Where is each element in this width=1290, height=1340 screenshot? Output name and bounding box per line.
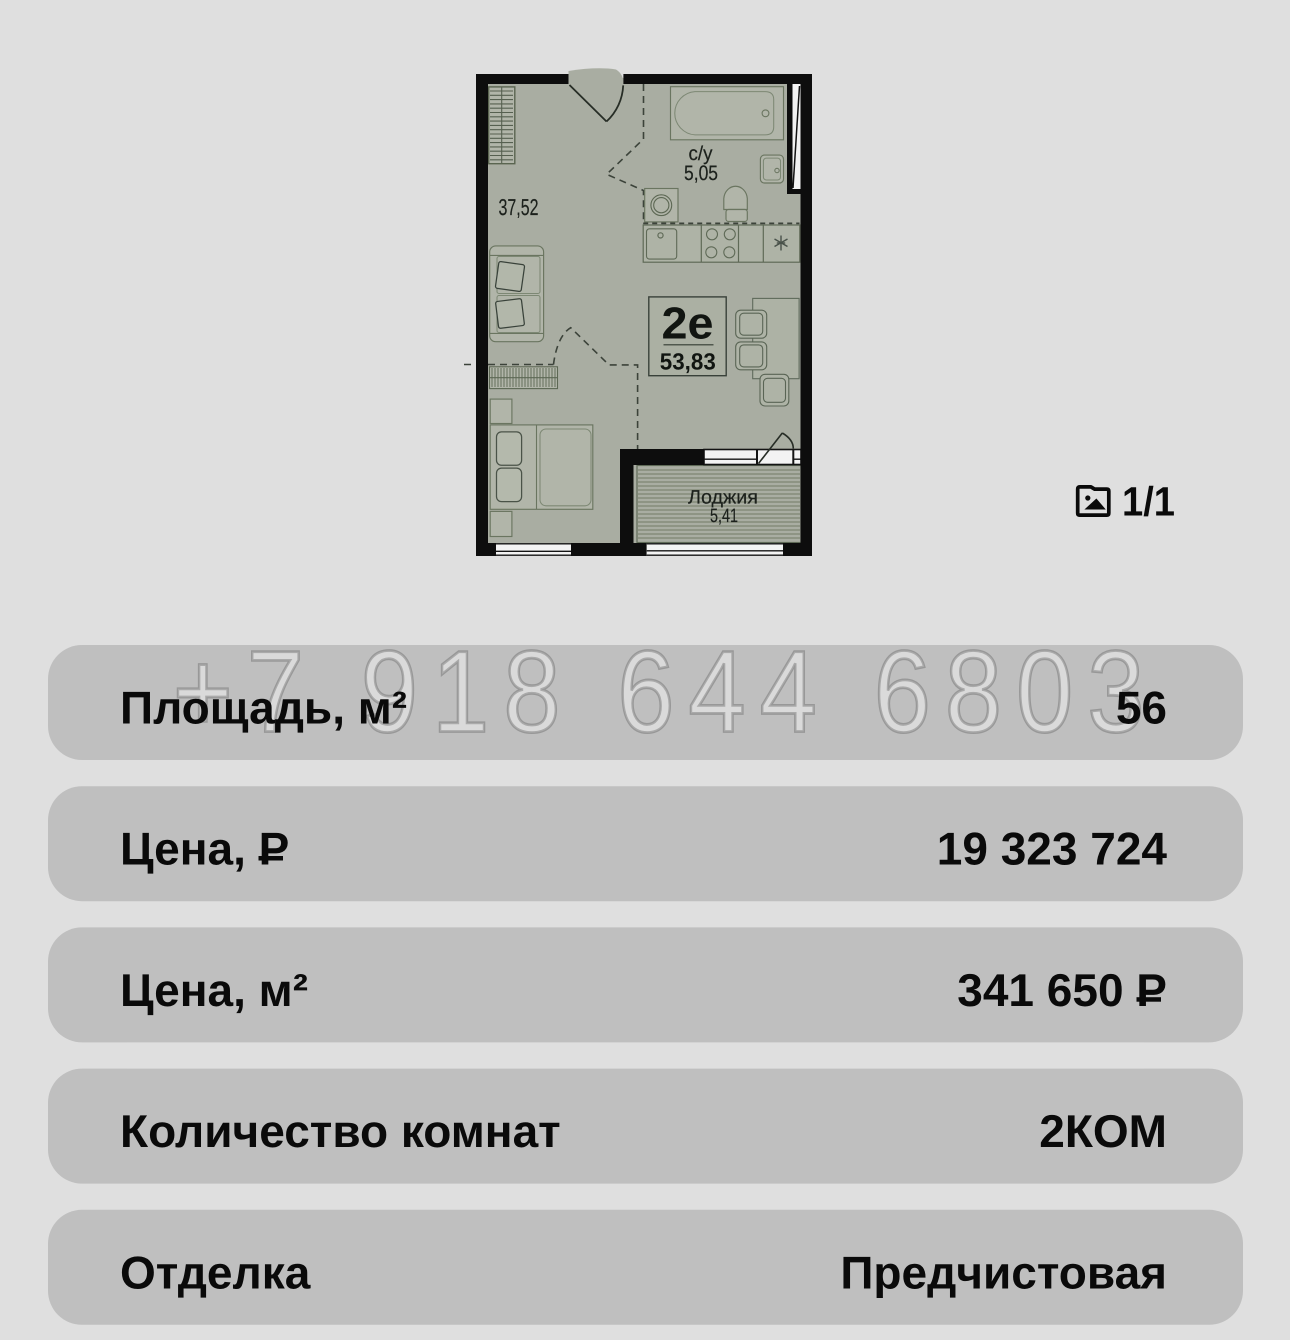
- svg-text:56: 56: [1116, 682, 1167, 734]
- svg-text:5,05: 5,05: [684, 162, 718, 185]
- svg-text:5,41: 5,41: [710, 505, 738, 527]
- svg-text:37,52: 37,52: [499, 194, 539, 220]
- svg-text:2е: 2е: [662, 298, 714, 349]
- svg-text:2КОМ: 2КОМ: [1039, 1105, 1167, 1157]
- svg-text:Цена, м²: Цена, м²: [120, 964, 308, 1016]
- svg-text:Количество комнат: Количество комнат: [120, 1105, 561, 1157]
- svg-text:53,83: 53,83: [660, 349, 716, 375]
- svg-text:Отделка: Отделка: [120, 1246, 311, 1298]
- svg-text:1/1: 1/1: [1122, 479, 1175, 525]
- svg-text:19 323 724: 19 323 724: [937, 823, 1168, 875]
- svg-text:341 650 Р: 341 650 Р: [957, 964, 1167, 1016]
- svg-text:Предчистовая: Предчистовая: [840, 1246, 1167, 1298]
- svg-text:Цена, Р: Цена, Р: [120, 823, 289, 875]
- svg-text:Площадь, м²: Площадь, м²: [120, 682, 407, 734]
